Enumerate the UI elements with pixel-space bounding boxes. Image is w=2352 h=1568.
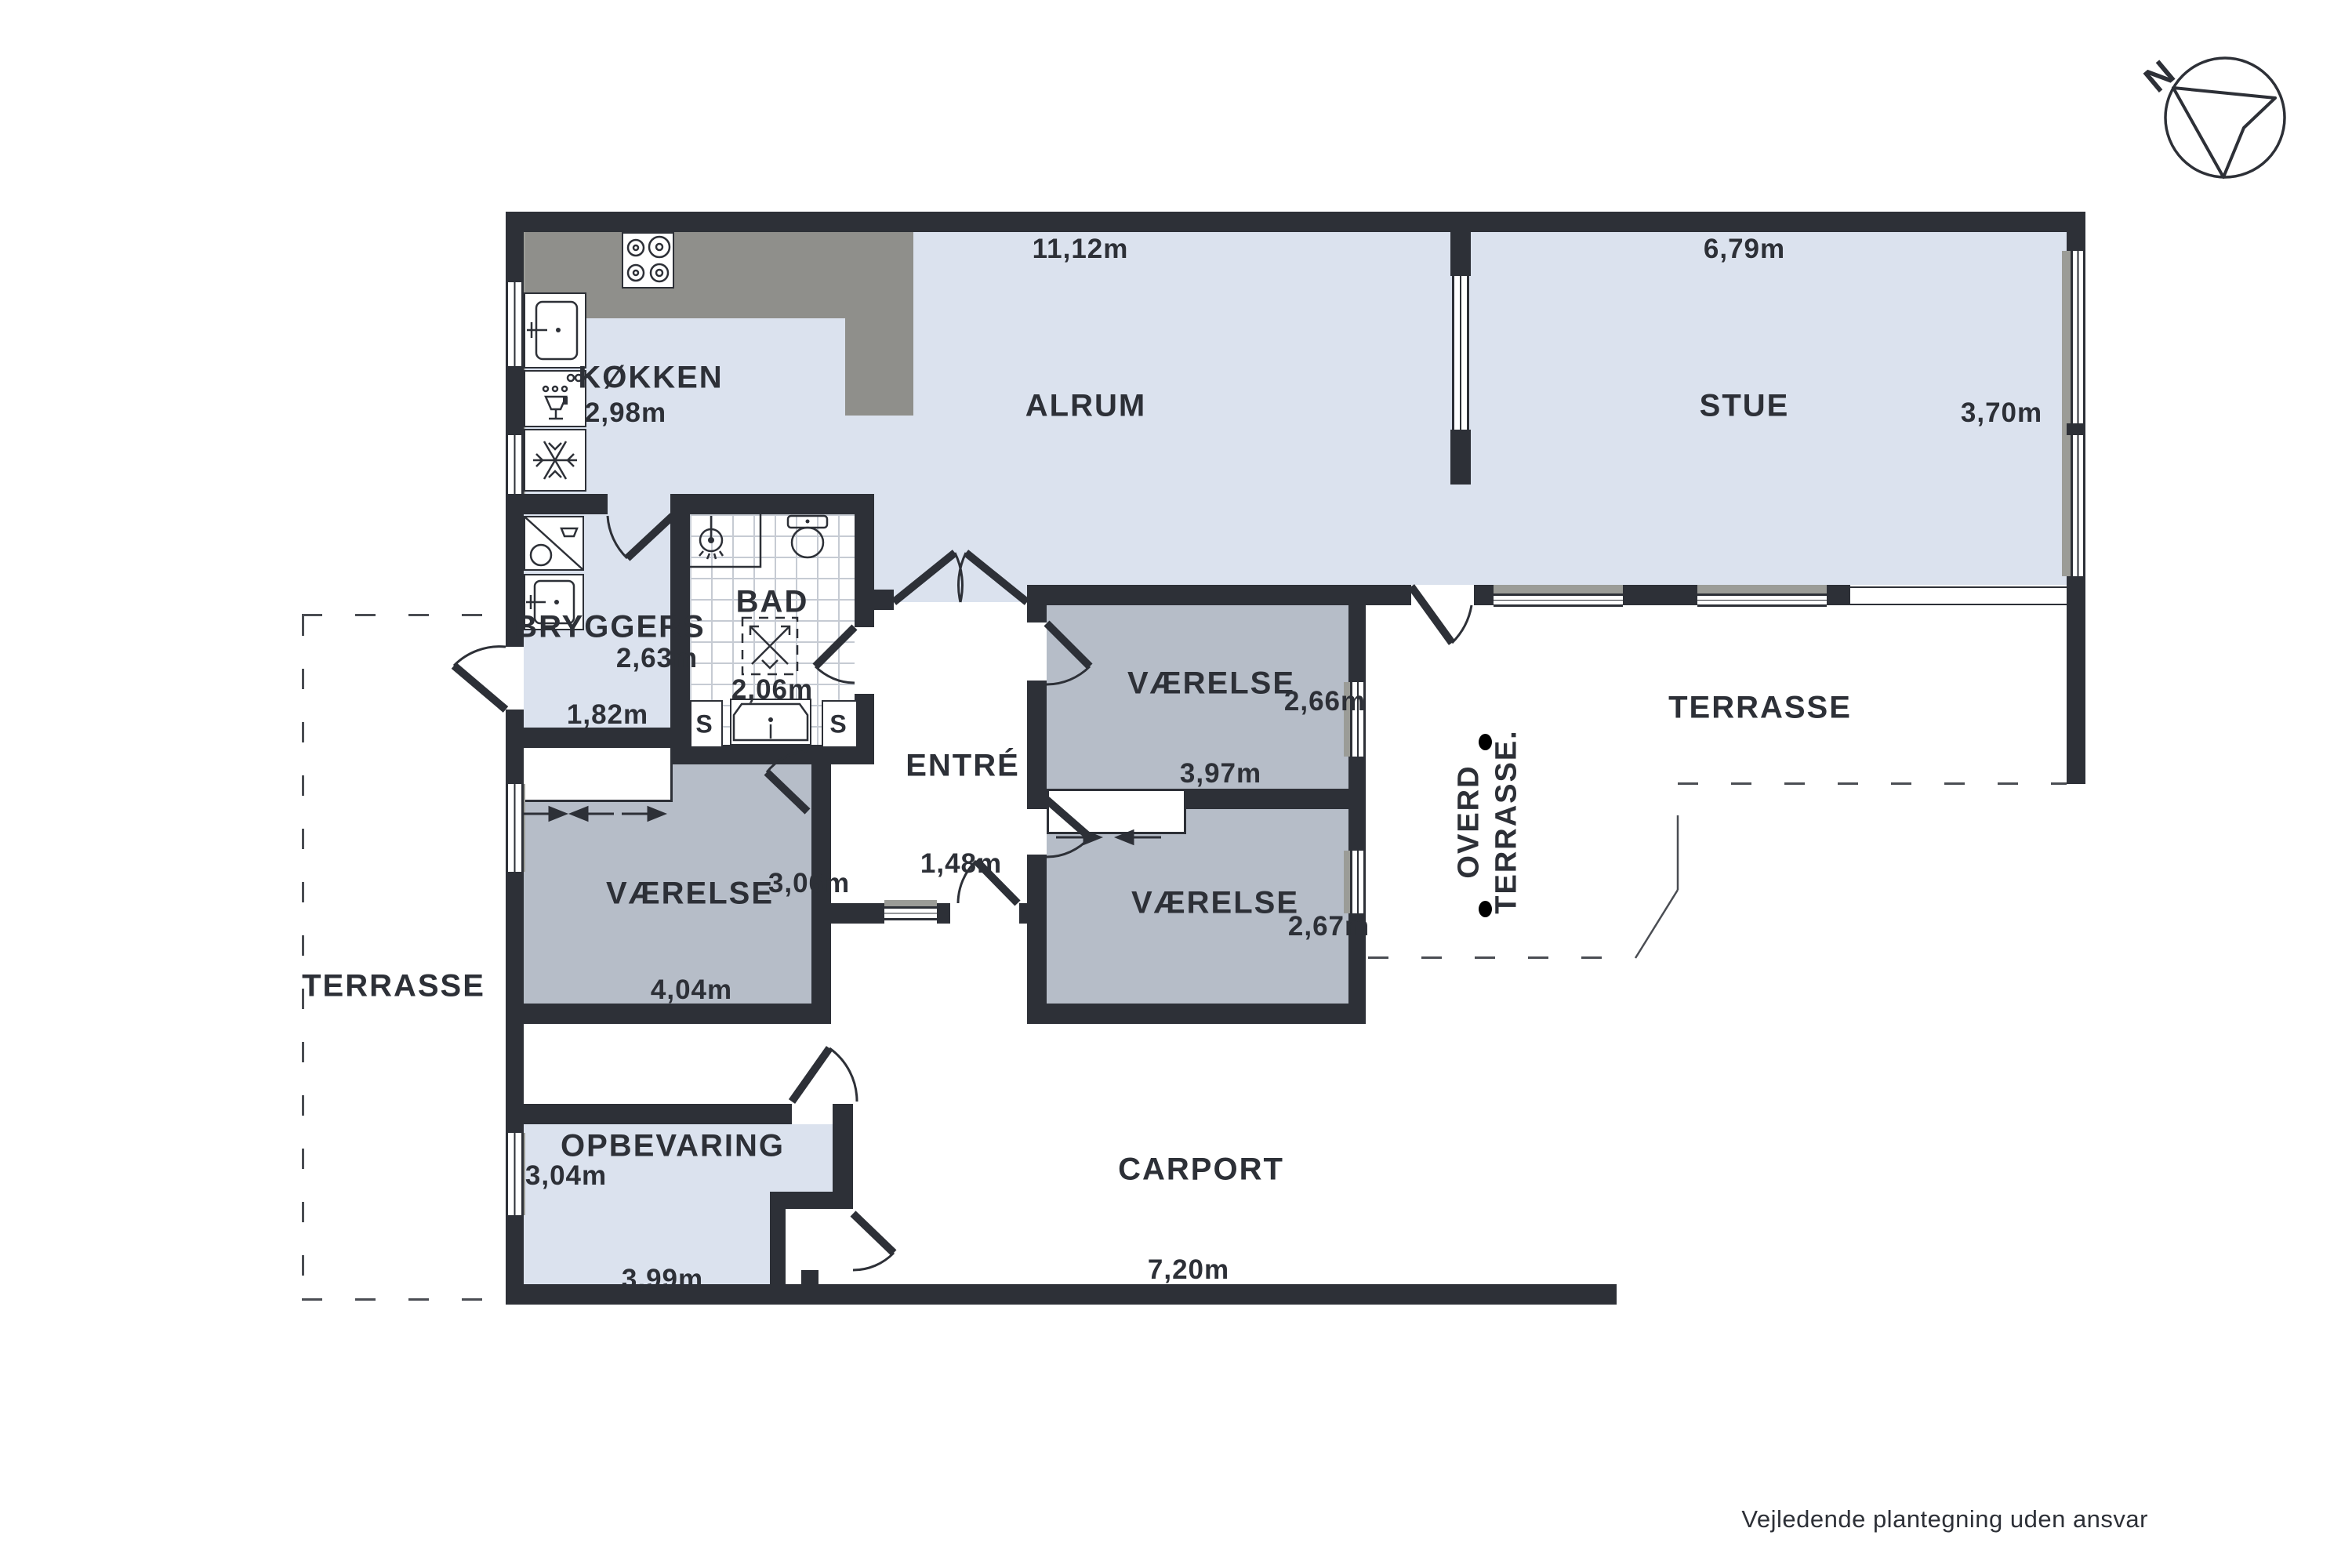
wall-opbevaring-niche-n	[770, 1192, 853, 1209]
door-bryggers-terrasse	[435, 639, 510, 713]
closet-s-right-label: S	[829, 710, 848, 739]
window-stue-south-2	[1697, 593, 1827, 607]
window-stue-east-1	[2071, 251, 2085, 423]
wall-left	[506, 366, 524, 435]
closet-s-left-label: S	[695, 710, 713, 739]
measure-bad: 2,06m	[731, 674, 813, 706]
measure-carport: 7,20m	[1148, 1254, 1229, 1286]
washing-machine-icon	[524, 516, 584, 571]
door-vaerelse-ne	[1043, 615, 1117, 690]
overd-line1: OVERD	[1453, 764, 1486, 878]
disclaimer-text: Vejledende plantegning uden ansvar	[1741, 1505, 2148, 1534]
room-label-terrasse-left: TERRASSE	[302, 969, 485, 1004]
wall-vaerelse-sw-south	[506, 1004, 831, 1024]
door-niche-carport	[847, 1207, 921, 1282]
window-stue-east-2	[2071, 435, 2085, 576]
wall-vaerelse-se-south	[1027, 1004, 1366, 1024]
window-alrum-stue-divider	[1452, 276, 1469, 430]
room-label-bad: BAD	[736, 585, 809, 620]
dishwasher-icon	[524, 370, 586, 427]
wall-vaerelse-ne-west	[1027, 681, 1047, 809]
room-label-overdaekket-terrasse: OVERD TERRASSE.	[1451, 729, 1526, 913]
wall-stue-south	[1827, 585, 1850, 605]
wall-left	[506, 872, 524, 1133]
measure-alrum: 11,12m	[1033, 234, 1129, 265]
wall-stue-east	[2067, 232, 2085, 251]
door-bad	[808, 623, 882, 698]
wall-bad-north	[670, 494, 874, 514]
room-label-vaerelse-ne: VÆRELSE	[1127, 666, 1295, 702]
wall-opbevaring-north	[506, 1104, 792, 1124]
room-label-alrum: ALRUM	[1025, 389, 1146, 424]
door-carport-opbevaring	[784, 1039, 862, 1113]
window-kitchen-2	[506, 435, 524, 502]
double-door-alrum-entre	[890, 545, 1031, 608]
freezer-icon	[524, 429, 586, 492]
sill-stue-east	[2062, 251, 2071, 576]
measure-vaerelse-se-h: 2,67m	[1288, 911, 1370, 942]
wall-stue-east-stub	[2067, 576, 2085, 784]
window-kitchen-1	[506, 282, 524, 366]
measure-opbevaring-h: 3,04m	[525, 1160, 607, 1192]
wall-kitchen-south	[506, 494, 608, 514]
sill-entre-south	[884, 900, 937, 906]
wall-stue-east	[2067, 423, 2085, 435]
measure-stue-w: 6,79m	[1704, 234, 1785, 265]
window-opbevaring	[506, 1133, 524, 1215]
wall-divider-alrum-stue	[1450, 430, 1471, 485]
terrasse-right-dash-bottom	[1368, 956, 1635, 959]
wall-between-vaerelse	[1184, 789, 1366, 809]
terrasse-right-edge-lines	[1631, 811, 1686, 964]
room-label-vaerelse-se: VÆRELSE	[1131, 886, 1299, 921]
glass-doors-stue-south	[1850, 586, 2067, 605]
overd-line2: TERRASSE.	[1490, 729, 1523, 913]
measure-vaerelse-sw-w: 4,04m	[651, 975, 732, 1006]
wall-door-jamb-stub	[801, 1270, 818, 1284]
terrasse-left-dash-top	[302, 614, 508, 616]
measure-opbevaring-w: 3,99m	[622, 1264, 703, 1295]
wall-vaerelse-se-west	[1027, 855, 1047, 1024]
floor-plan: S S KØKKEN 2,98m ALRUM 11,12m STUE 6,79m…	[0, 0, 2352, 1568]
measure-kokken: 2,98m	[585, 397, 666, 429]
door-alrum-terrasse	[1403, 580, 1478, 655]
wall-bad-east	[855, 494, 874, 627]
window-vaerelse-sw	[506, 784, 524, 872]
compass-icon	[2148, 41, 2305, 198]
door-vaerelse-sw	[757, 745, 831, 819]
wall-divider-alrum-stue	[1450, 232, 1471, 276]
wall-vaerelse-ne-east	[1348, 585, 1366, 682]
measure-entre: 1,48m	[920, 848, 1002, 880]
room-label-entre: ENTRÉ	[906, 749, 1020, 784]
room-label-bryggers: BRYGGERS	[514, 610, 705, 645]
wall-entre-south	[831, 903, 884, 924]
floor-opbevaring-niche	[786, 1209, 853, 1284]
room-label-carport: CARPORT	[1118, 1152, 1284, 1188]
room-label-vaerelse-sw: VÆRELSE	[606, 877, 774, 912]
toilet-icon	[786, 514, 831, 558]
wall-left	[506, 232, 524, 282]
room-label-opbevaring: OPBEVARING	[561, 1129, 785, 1164]
wall-top	[506, 212, 2085, 232]
stove-icon	[622, 232, 674, 289]
wardrobe-arrows-vaerelse-se	[1054, 827, 1164, 848]
room-label-stue: STUE	[1700, 389, 1790, 424]
sink-icon	[524, 292, 586, 368]
room-label-terrasse-right: TERRASSE	[1668, 691, 1852, 726]
measure-stue-h: 3,70m	[1961, 397, 2042, 429]
sill-vaerelse-se-east	[1344, 851, 1350, 913]
shower-zone-dashed	[741, 616, 799, 676]
measure-bryggers-h: 1,82m	[567, 699, 648, 731]
wall-stue-south	[1623, 585, 1697, 605]
room-label-kokken: KØKKEN	[578, 361, 723, 396]
door-kokken-bryggers	[600, 492, 674, 567]
window-vaerelse-se	[1350, 851, 1366, 913]
terrasse-left-dash-side	[302, 615, 304, 1301]
kitchen-counter-arm	[845, 232, 913, 416]
wardrobe-arrows-vaerelse-sw	[521, 804, 702, 824]
measure-vaerelse-ne-h: 2,66m	[1284, 686, 1366, 717]
measure-vaerelse-ne-w: 3,97m	[1180, 758, 1261, 789]
wall-vaerelse-se-east	[1348, 809, 1366, 851]
shower-icon	[690, 514, 792, 589]
measure-vaerelse-sw-h: 3,06m	[768, 868, 850, 899]
terrasse-left-dash-bottom	[302, 1298, 506, 1301]
wall-opbevaring-niche-w	[770, 1209, 786, 1301]
closet-notch-vaerelse-sw	[524, 748, 673, 802]
window-stue-south-1	[1494, 593, 1623, 607]
measure-bryggers-w: 2,63m	[616, 643, 698, 674]
wall-opbevaring-east	[833, 1104, 853, 1198]
window-entre-south	[884, 906, 937, 920]
terrasse-right-dash-top	[1678, 782, 2067, 785]
